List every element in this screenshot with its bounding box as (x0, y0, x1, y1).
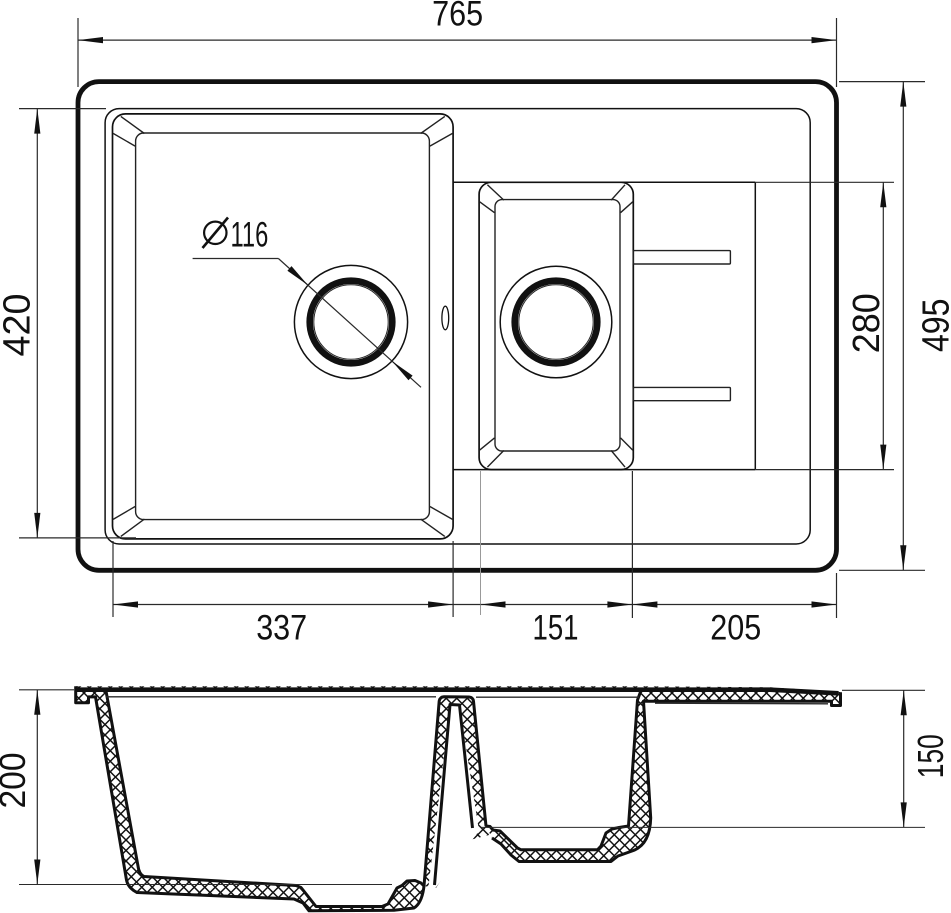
svg-text:116: 116 (231, 215, 269, 254)
svg-text:420: 420 (0, 294, 38, 357)
svg-text:765: 765 (432, 0, 483, 34)
svg-text:200: 200 (0, 753, 33, 809)
svg-text:280: 280 (846, 293, 888, 353)
svg-text:205: 205 (710, 608, 761, 647)
svg-text:495: 495 (915, 299, 951, 353)
svg-text:150: 150 (910, 734, 951, 778)
svg-text:337: 337 (256, 608, 307, 647)
svg-text:151: 151 (533, 608, 579, 647)
